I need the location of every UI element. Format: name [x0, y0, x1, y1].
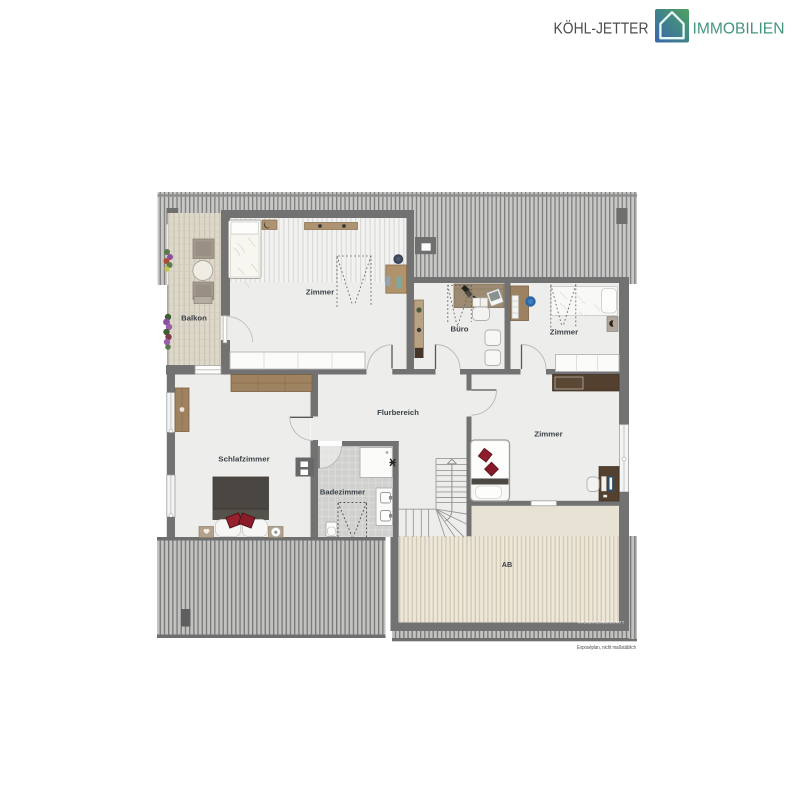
svg-text:Zimmer: Zimmer	[550, 328, 579, 337]
svg-text:AB: AB	[502, 560, 513, 569]
svg-text:Büro: Büro	[451, 325, 469, 334]
svg-text:Schlafzimmer: Schlafzimmer	[218, 455, 269, 464]
svg-text:Zimmer: Zimmer	[306, 288, 335, 297]
svg-text:GRUNDRISSWERKSTATT: GRUNDRISSWERKSTATT	[578, 621, 625, 625]
svg-text:Balkon: Balkon	[181, 314, 207, 323]
svg-text:KÖHL-JETTER: KÖHL-JETTER	[554, 20, 649, 38]
svg-text:Flurbereich: Flurbereich	[377, 408, 419, 417]
svg-text:IMMOBILIEN: IMMOBILIEN	[693, 21, 785, 38]
svg-text:Badezimmer: Badezimmer	[320, 488, 365, 497]
svg-text:Zimmer: Zimmer	[534, 430, 563, 439]
svg-text:Exposéplan, nicht maßstäblich: Exposéplan, nicht maßstäblich	[577, 645, 636, 651]
